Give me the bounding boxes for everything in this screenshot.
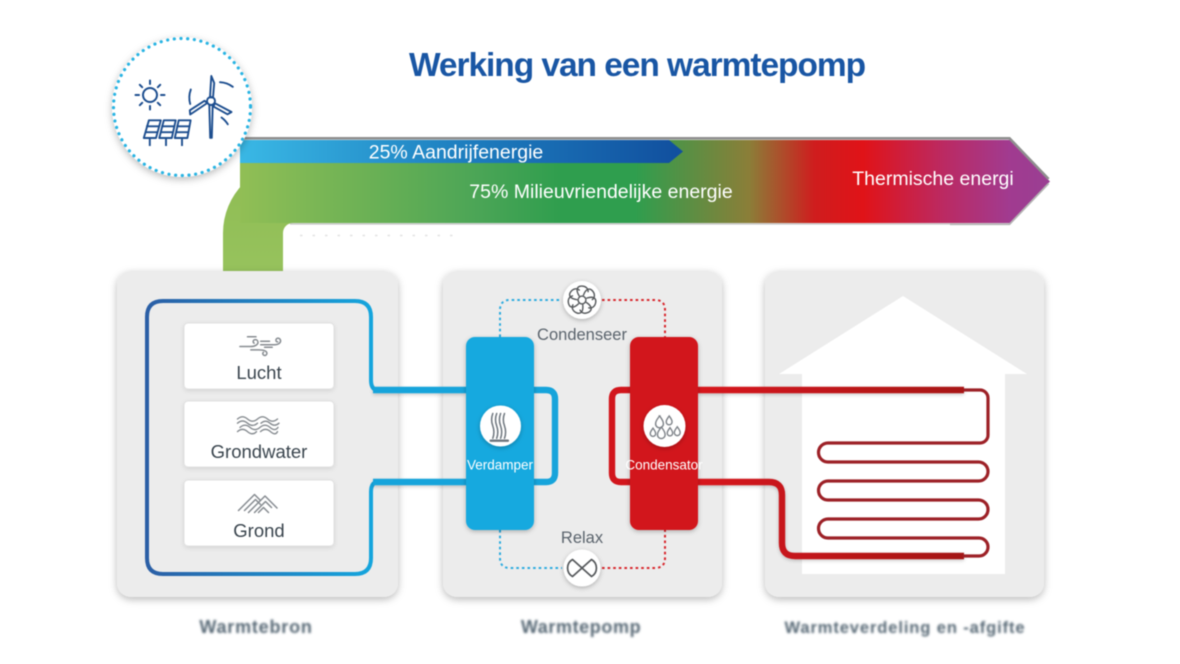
svg-text:Verdamper: Verdamper: [467, 458, 534, 473]
svg-text:Condenseer: Condenseer: [537, 326, 627, 344]
svg-text:Grond: Grond: [233, 520, 284, 541]
svg-text:Lucht: Lucht: [236, 362, 281, 383]
svg-text:Thermische energi: Thermische energi: [852, 168, 1013, 190]
svg-text:Grondwater: Grondwater: [211, 441, 308, 462]
svg-text:Condensator: Condensator: [625, 458, 703, 473]
svg-text:25% Aandrijfenergie: 25% Aandrijfenergie: [369, 142, 544, 164]
svg-text:Werking van een warmtepomp: Werking van een warmtepomp: [409, 47, 866, 84]
svg-text:Warmtepomp: Warmtepomp: [521, 617, 641, 637]
svg-text:75% Milieuvriendelijke energie: 75% Milieuvriendelijke energie: [469, 181, 732, 203]
svg-text:Warmteverdeling en -afgifte: Warmteverdeling en -afgifte: [785, 619, 1026, 637]
svg-text:Warmtebron: Warmtebron: [199, 617, 312, 637]
svg-text:Relax: Relax: [561, 529, 604, 547]
